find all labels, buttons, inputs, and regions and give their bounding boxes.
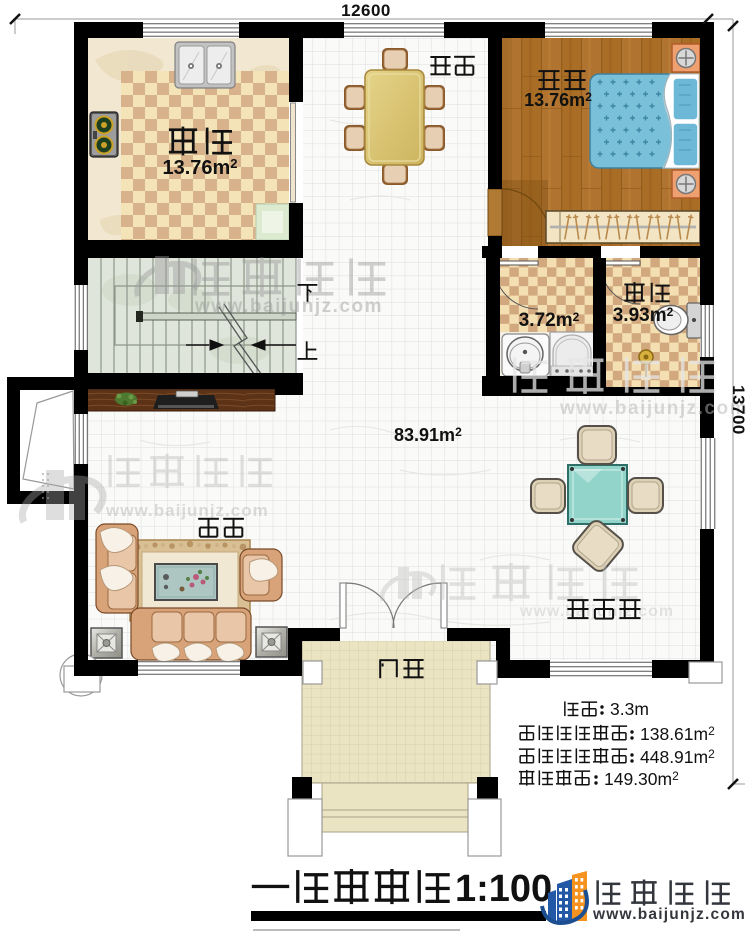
svg-text:www.baijunjz.com: www.baijunjz.com [105,501,269,520]
svg-text:www.baijunjz.com: www.baijunjz.com [519,603,674,620]
svg-text:448.91m2: 448.91m2 [640,747,715,767]
svg-text:83.91m2: 83.91m2 [394,425,462,445]
svg-text:149.30m2: 149.30m2 [604,769,679,789]
svg-text:www.baijunjz.com: www.baijunjz.com [194,296,383,317]
svg-text:1:100: 1:100 [455,868,552,910]
svg-text:3.3m: 3.3m [610,699,649,719]
svg-text:www.baijunjz.com: www.baijunjz.com [592,906,746,923]
svg-text:13.76m2: 13.76m2 [162,156,237,179]
svg-text:12600: 12600 [341,1,391,20]
svg-text:3.72m2: 3.72m2 [519,310,580,331]
svg-text:3.93m2: 3.93m2 [613,305,674,326]
svg-text:13.76m2: 13.76m2 [524,90,592,110]
svg-text:138.61m2: 138.61m2 [640,724,715,744]
svg-text:13700: 13700 [729,385,748,435]
svg-text:www.baijunjz.com: www.baijunjz.com [559,398,748,419]
